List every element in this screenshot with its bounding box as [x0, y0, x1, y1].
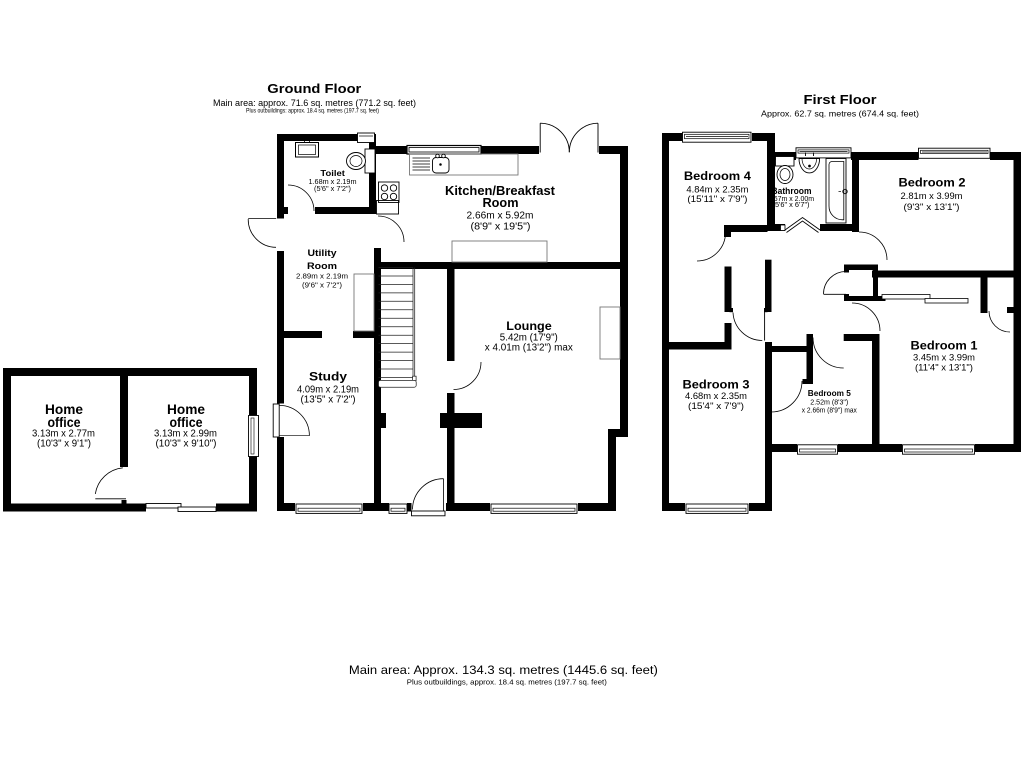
- svg-text:(15'4" x 7'9"): (15'4" x 7'9"): [688, 401, 744, 412]
- svg-text:Ground Floor: Ground Floor: [267, 81, 361, 96]
- svg-text:Bedroom 5: Bedroom 5: [808, 388, 851, 398]
- svg-text:Bedroom 4: Bedroom 4: [684, 169, 751, 183]
- svg-text:Room: Room: [307, 261, 337, 272]
- svg-text:Utility: Utility: [308, 248, 338, 259]
- svg-text:(11'4" x 13'1"): (11'4" x 13'1"): [915, 363, 973, 374]
- svg-text:(5'6" x 6'7"): (5'6" x 6'7"): [773, 202, 810, 209]
- svg-text:x 4.01m (13'2") max: x 4.01m (13'2") max: [485, 343, 573, 354]
- svg-text:2.81m x 3.99m: 2.81m x 3.99m: [901, 191, 963, 202]
- svg-text:x 2.66m (8'9") max: x 2.66m (8'9") max: [802, 408, 858, 415]
- svg-text:(10'3" x 9'10"): (10'3" x 9'10"): [156, 439, 217, 450]
- svg-text:(13'5" x 7'2"): (13'5" x 7'2"): [301, 395, 356, 406]
- svg-text:Room: Room: [483, 196, 519, 210]
- svg-text:Bedroom 1: Bedroom 1: [911, 339, 978, 353]
- svg-text:2.52m (8'3"): 2.52m (8'3"): [810, 400, 848, 407]
- svg-text:(10'3" x 9'1"): (10'3" x 9'1"): [37, 439, 91, 450]
- svg-text:Approx. 62.7 sq. metres (674.4: Approx. 62.7 sq. metres (674.4 sq. feet): [761, 109, 919, 119]
- svg-text:(9'6" x 7'2"): (9'6" x 7'2"): [302, 280, 342, 289]
- svg-text:(9'3" x 13'1"): (9'3" x 13'1"): [904, 202, 960, 213]
- svg-text:(5'6" x 7'2"): (5'6" x 7'2"): [314, 184, 351, 193]
- svg-text:(8'9" x 19'5"): (8'9" x 19'5"): [471, 221, 531, 232]
- svg-text:Main area: approx. 71.6 sq. me: Main area: approx. 71.6 sq. metres (771.…: [213, 98, 416, 108]
- svg-text:2.66m x 5.92m: 2.66m x 5.92m: [467, 211, 534, 222]
- svg-text:Bedroom 3: Bedroom 3: [683, 378, 750, 392]
- svg-text:Main area: Approx. 134.3 sq. m: Main area: Approx. 134.3 sq. metres (144…: [349, 663, 658, 677]
- svg-text:2.89m x 2.19m: 2.89m x 2.19m: [296, 271, 348, 280]
- svg-text:Plus outbuildings, approx. 18.: Plus outbuildings, approx. 18.4 sq. metr…: [407, 678, 607, 687]
- svg-text:Bedroom 2: Bedroom 2: [899, 176, 966, 190]
- svg-text:Plus outbuildings: approx. 18.: Plus outbuildings: approx. 18.4 sq. metr…: [246, 109, 379, 115]
- svg-text:Study: Study: [309, 371, 348, 384]
- svg-text:Lounge: Lounge: [506, 320, 552, 333]
- svg-text:(15'11" x 7'9"): (15'11" x 7'9"): [687, 194, 747, 205]
- svg-text:First Floor: First Floor: [804, 92, 877, 107]
- svg-text:Bathroom: Bathroom: [772, 186, 812, 196]
